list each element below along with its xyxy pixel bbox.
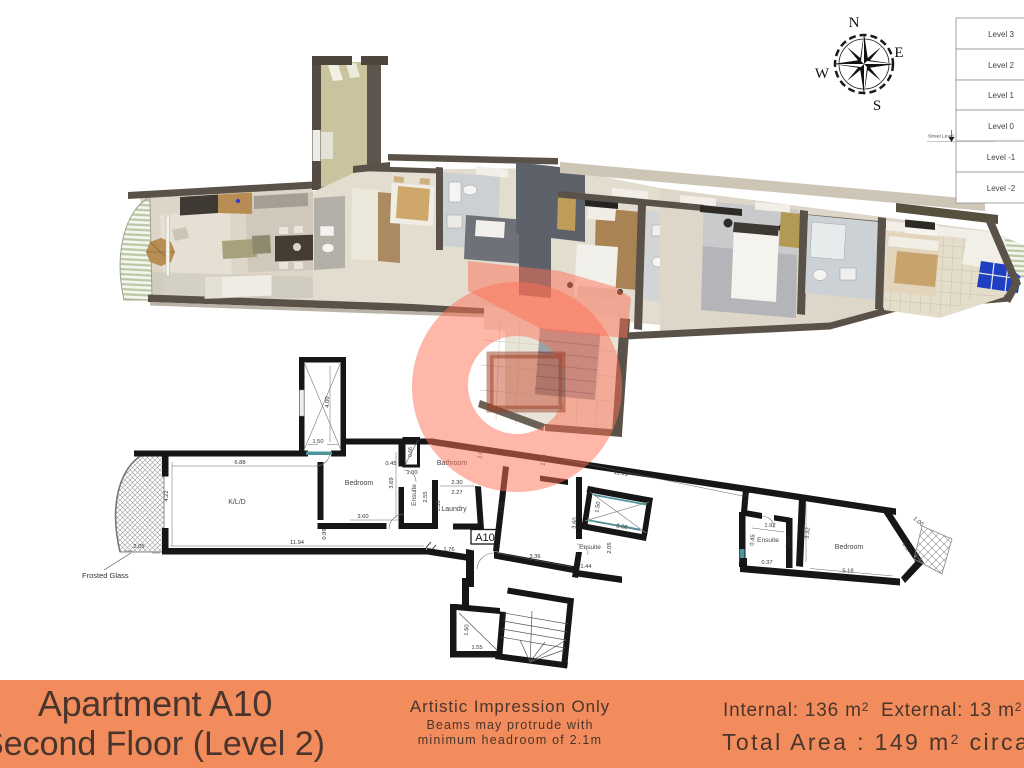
svg-text:External: 13 m2: External: 13 m2	[881, 700, 1022, 721]
svg-text:2.30: 2.30	[451, 480, 462, 486]
svg-text:1.50: 1.50	[464, 624, 471, 636]
svg-text:Level 0: Level 0	[988, 122, 1014, 131]
svg-text:1.00: 1.00	[743, 491, 751, 503]
svg-text:Frosted Glass: Frosted Glass	[82, 571, 129, 580]
svg-text:Ensuite: Ensuite	[411, 484, 418, 506]
svg-text:Laundry: Laundry	[441, 506, 467, 513]
svg-text:2.05: 2.05	[607, 542, 613, 553]
svg-text:Artistic Impression Only: Artistic Impression Only	[410, 697, 610, 716]
svg-text:4.00: 4.00	[325, 396, 331, 407]
svg-text:Total Area : 149 m2 circa: Total Area : 149 m2 circa	[722, 729, 1024, 755]
svg-text:Level -2: Level -2	[987, 184, 1016, 193]
svg-text:11.99: 11.99	[613, 470, 628, 478]
svg-text:0.37: 0.37	[761, 560, 772, 566]
svg-text:1.76: 1.76	[443, 547, 454, 553]
svg-text:1.50: 1.50	[594, 501, 602, 513]
svg-text:5.18: 5.18	[842, 569, 853, 575]
svg-text:4.22: 4.22	[164, 490, 170, 501]
svg-text:K/L/D: K/L/D	[228, 499, 246, 506]
svg-text:Ensuite: Ensuite	[757, 537, 779, 544]
svg-text:Ensuite: Ensuite	[579, 544, 601, 551]
svg-text:2.27: 2.27	[451, 490, 462, 496]
svg-text:1.44: 1.44	[580, 564, 592, 570]
svg-text:S: S	[873, 98, 881, 114]
svg-text:Bedroom: Bedroom	[835, 544, 864, 551]
svg-text:Second Floor (Level 2): Second Floor (Level 2)	[0, 725, 325, 763]
svg-text:11.94: 11.94	[290, 540, 305, 546]
svg-text:3.69: 3.69	[389, 477, 395, 488]
svg-text:3.60: 3.60	[357, 514, 368, 520]
svg-text:2.05: 2.05	[133, 544, 144, 550]
svg-text:0.66: 0.66	[408, 447, 414, 457]
svg-text:Level 1: Level 1	[988, 91, 1014, 100]
svg-text:2.09: 2.09	[786, 536, 793, 548]
svg-text:2.55: 2.55	[423, 491, 429, 502]
svg-text:0.45: 0.45	[750, 534, 757, 546]
svg-text:0.99: 0.99	[322, 528, 328, 539]
svg-text:1.50: 1.50	[312, 439, 323, 445]
svg-text:Level -1: Level -1	[987, 153, 1016, 162]
svg-text:3.36: 3.36	[529, 554, 540, 560]
svg-text:W: W	[815, 66, 830, 82]
svg-text:A10: A10	[475, 532, 495, 544]
svg-text:1.55: 1.55	[471, 645, 482, 651]
svg-text:E: E	[894, 45, 903, 61]
svg-text:Apartment A10: Apartment A10	[38, 683, 272, 724]
svg-text:N: N	[849, 15, 860, 31]
svg-text:Bedroom: Bedroom	[345, 480, 374, 487]
svg-text:Beams may protrude with: Beams may protrude with	[426, 718, 593, 732]
svg-text:0.45: 0.45	[385, 461, 396, 467]
svg-text:6.88: 6.88	[234, 460, 245, 466]
svg-text:Internal: 136 m2: Internal: 136 m2	[723, 700, 869, 721]
svg-text:3.60: 3.60	[572, 517, 579, 529]
svg-text:Level 2: Level 2	[988, 61, 1014, 70]
svg-text:3.32: 3.32	[805, 527, 812, 539]
svg-text:minimum headroom of 2.1m: minimum headroom of 2.1m	[418, 733, 602, 747]
svg-text:3.86: 3.86	[499, 501, 506, 513]
svg-text:Level 3: Level 3	[988, 30, 1014, 39]
